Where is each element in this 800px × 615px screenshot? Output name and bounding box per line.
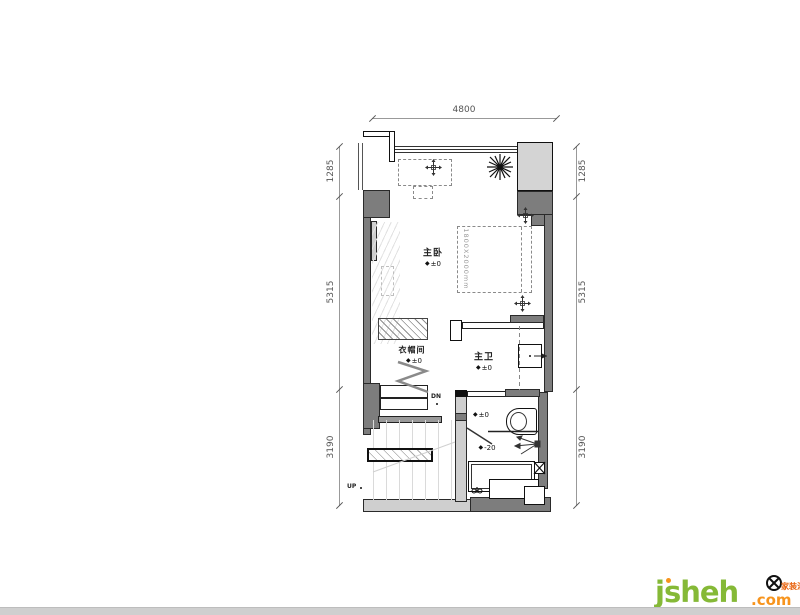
watermark-suffix: .com <box>751 593 792 608</box>
watermark: jsheh .com 家装汇 <box>648 574 800 608</box>
room-label-bedroom: 主卧 <box>423 246 443 259</box>
fan-symbol-right-upper <box>517 207 534 224</box>
level-value: -20 <box>484 444 495 452</box>
level-value: ±0 <box>479 411 489 419</box>
level-marker-cloakroom: ◆ ±0 <box>406 357 422 365</box>
watermark-logo-text: 家装汇 <box>781 581 800 592</box>
level-icon: ◆ <box>425 261 430 267</box>
level-marker-bathroom: ◆ ±0 <box>476 364 492 372</box>
level-icon: ◆ <box>476 365 481 371</box>
tub-faucet <box>472 487 482 493</box>
folding-door-zigzag <box>398 362 428 392</box>
stair-label-up: UP <box>347 483 356 490</box>
room-label-bathroom: 主卫 <box>474 350 494 363</box>
level-icon: ◆ <box>473 412 478 418</box>
room-label-cloakroom: 衣帽间 <box>399 345 426 356</box>
stair-up-dot <box>360 487 362 489</box>
shower-head-spray <box>515 436 540 454</box>
level-value: ±0 <box>431 260 441 268</box>
level-marker-bedroom: ◆ ±0 <box>425 260 441 268</box>
level-value: ±0 <box>412 357 422 365</box>
level-marker-shower-lower: ◆ -20 <box>478 444 495 452</box>
fan-symbol-desk <box>425 159 442 176</box>
window-left <box>359 143 363 190</box>
fan-symbol-right-lower <box>514 295 531 312</box>
window-top <box>395 147 517 153</box>
plan-linework <box>0 0 800 614</box>
floor-drain-x <box>534 462 545 474</box>
watermark-j-dot <box>666 578 671 583</box>
level-icon: ◆ <box>406 358 411 364</box>
stair-dn-dot <box>436 403 438 405</box>
stair-break-line <box>373 442 455 472</box>
plant-icon <box>487 154 513 180</box>
sink-arrow <box>534 354 547 359</box>
shower-door-line <box>467 428 492 444</box>
level-marker-shower-upper: ◆ ±0 <box>473 411 489 419</box>
stair-label-down: DN <box>431 393 441 400</box>
floorplan-page: { "plan": { "dimensions": { "top": "4800… <box>0 0 800 614</box>
level-value: ±0 <box>482 364 492 372</box>
level-icon: ◆ <box>478 445 483 451</box>
watermark-logo-icon <box>766 575 782 591</box>
